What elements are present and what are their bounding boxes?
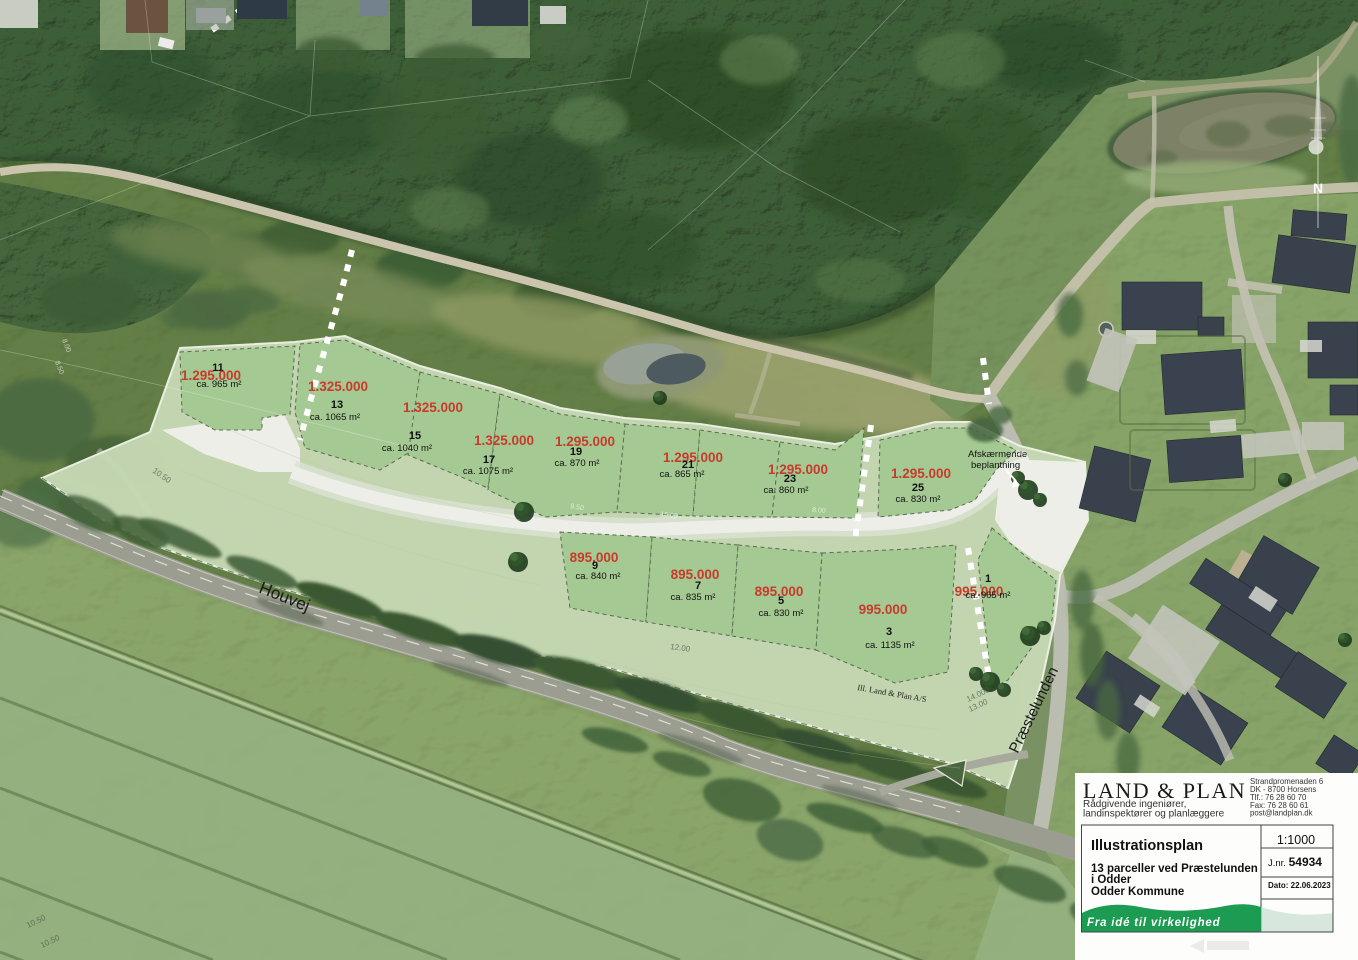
svg-text:ca. 860 m²: ca. 860 m² [764,485,809,496]
svg-text:7: 7 [695,580,701,592]
svg-text:N: N [1313,180,1323,196]
svg-text:ca. 865 m²: ca. 865 m² [660,469,705,480]
svg-text:ca. 965 m²: ca. 965 m² [197,379,242,390]
svg-text:Odder Kommune: Odder Kommune [1091,886,1184,898]
svg-text:ca. 830 m²: ca. 830 m² [759,608,804,619]
svg-text:ca. 1065 m²: ca. 1065 m² [310,412,360,423]
svg-text:19: 19 [570,446,582,458]
svg-text:1.295.000: 1.295.000 [768,462,828,477]
svg-text:15: 15 [409,430,421,442]
svg-text:ca. 1075 m²: ca. 1075 m² [463,466,513,477]
svg-text:Dato: 22.06.2023: Dato: 22.06.2023 [1268,881,1331,890]
svg-text:ca. 835 m²: ca. 835 m² [671,592,716,603]
svg-text:7.00: 7.00 [1010,450,1024,457]
svg-text:3: 3 [886,626,892,638]
svg-text:Fra idé til virkelighed: Fra idé til virkelighed [1087,917,1221,929]
svg-text:ca. 1040 m²: ca. 1040 m² [382,443,432,454]
svg-text:ca. 965 m²: ca. 965 m² [966,590,1011,601]
svg-text:post@landplan.dk: post@landplan.dk [1250,809,1313,818]
svg-text:1.325.000: 1.325.000 [308,379,368,394]
svg-text:23: 23 [784,473,796,485]
svg-text:beplantning: beplantning [971,460,1020,471]
svg-text:1.325.000: 1.325.000 [474,433,534,448]
svg-text:J.nr. 54934: J.nr. 54934 [1268,855,1322,869]
svg-text:1.295.000: 1.295.000 [555,434,615,449]
svg-text:ca. 830 m²: ca. 830 m² [896,494,941,505]
svg-text:i Odder: i Odder [1091,874,1132,886]
svg-text:1.325.000: 1.325.000 [403,400,463,415]
svg-text:17: 17 [483,454,495,466]
svg-text:landinspektører og planlæggere: landinspektører og planlæggere [1083,809,1225,820]
svg-text:Illustrationsplan: Illustrationsplan [1091,838,1203,854]
svg-text:8.00: 8.00 [812,507,826,515]
svg-text:ca. 870 m²: ca. 870 m² [555,458,600,469]
svg-text:1:1000: 1:1000 [1277,833,1315,847]
svg-text:ca. 840 m²: ca. 840 m² [576,571,621,582]
svg-text:995.000: 995.000 [859,602,908,617]
svg-text:ca. 1135 m²: ca. 1135 m² [865,640,914,651]
svg-text:5: 5 [778,595,784,607]
svg-text:25: 25 [912,482,924,494]
svg-text:13: 13 [331,399,343,411]
svg-text:1.295.000: 1.295.000 [891,466,951,481]
